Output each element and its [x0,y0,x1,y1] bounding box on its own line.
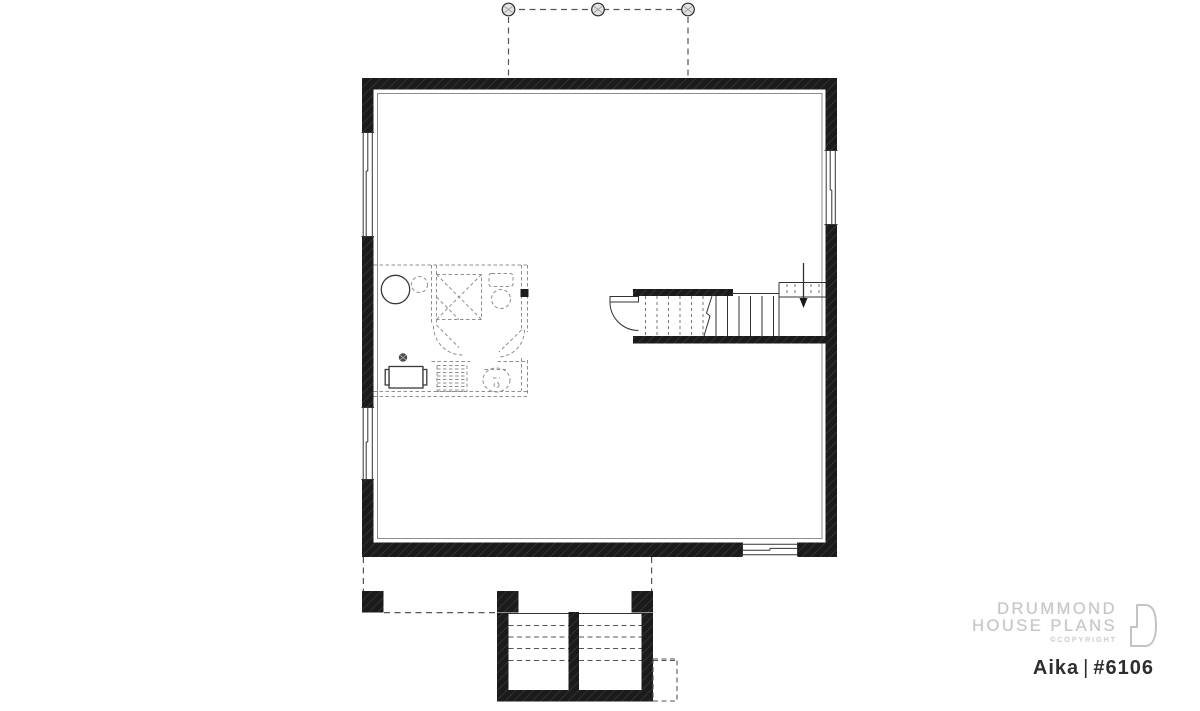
exterior-walls [362,78,837,557]
stair-landing [779,283,826,337]
plan-name: Aika [1033,657,1079,679]
window-left-lower [361,407,374,480]
window-right [824,150,837,225]
deck-post-round-1 [502,3,515,16]
plan-title-separator: | [1079,657,1093,679]
stairwell-side-pad [653,659,677,701]
floor-plan-page: DRUMMOND HOUSE PLANS ©COPYRIGHT Aika|#61… [0,0,1200,711]
furnace [385,367,427,389]
exterior-stairwell [497,612,677,702]
copyright-label: ©COPYRIGHT [972,637,1117,645]
plan-title: Aika|#6106 [1033,657,1154,680]
window-bottom [742,542,798,557]
vanity-sink [489,274,513,309]
suite-door-swing-right [498,330,525,357]
interior-face-line [378,94,823,539]
stair-break-line [704,296,712,336]
drummond-logo-text: DRUMMOND HOUSE PLANS ©COPYRIGHT [972,601,1117,645]
structural-post [521,289,529,297]
drummond-logo: DRUMMOND HOUSE PLANS ©COPYRIGHT [972,601,1158,647]
suite-door-swing-left [434,325,463,355]
stair-wall-top [633,289,733,296]
shower [437,275,482,320]
stair-direction-arrow [800,263,808,308]
deck-post-square-3 [632,591,654,613]
drummond-d-icon [1124,601,1158,647]
deck-post-round-3 [682,3,695,16]
lower-deck-outline [362,557,653,613]
sump-drain [399,353,407,361]
staircase [610,263,837,344]
stair-door [610,297,639,331]
deck-post-square-2 [497,591,519,613]
water-heater [381,275,409,303]
upper-deck-outline [502,3,694,77]
logo-line-1: DRUMMOND [972,601,1117,618]
deck-post-round-2 [592,3,605,16]
floor-drain-circle [412,277,428,293]
window-left-upper [361,132,374,237]
laundry-tub [483,368,510,392]
stair-wall-bottom [633,336,837,344]
deck-post-square-1 [362,591,384,613]
logo-line-2: HOUSE PLANS [972,618,1117,635]
closet-shelving [437,366,467,392]
plan-number: #6106 [1093,657,1154,679]
